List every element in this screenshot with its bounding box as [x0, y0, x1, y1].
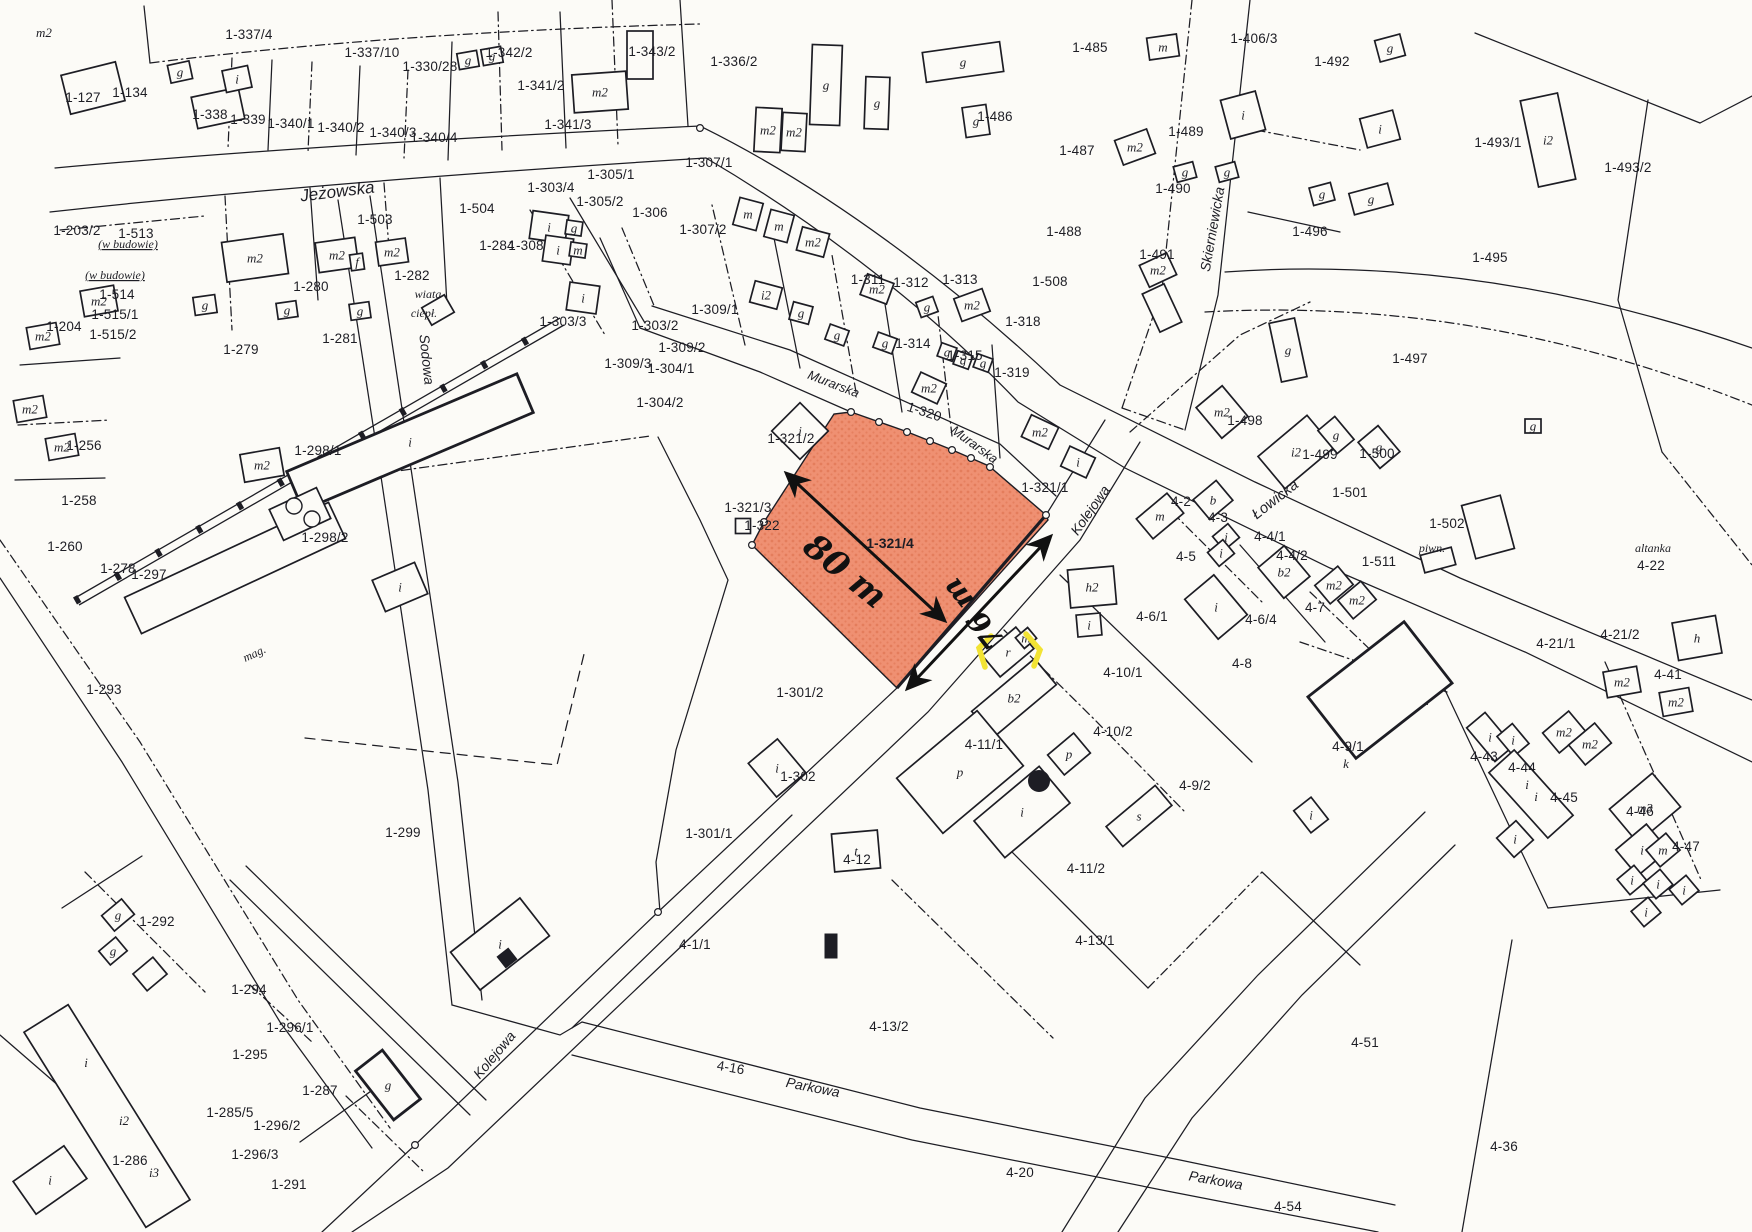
parcel-number-label: 1-491	[1139, 247, 1175, 262]
parcel-number-label: 1-321/1	[1021, 480, 1068, 495]
boundary-line	[62, 856, 142, 908]
street-name-label: Parkowa	[785, 1074, 842, 1100]
parcel-number-label: 4-16	[716, 1058, 746, 1078]
parcel-number-label: 1-341/2	[517, 78, 564, 93]
building-type-label: i	[1241, 108, 1245, 123]
building-type-label: g	[202, 298, 209, 313]
parcel-number-label: 4-46	[1626, 804, 1654, 819]
parcel-number-label: 1-336/2	[710, 54, 757, 69]
map-canvas: m2ggm2m2ggggmm2iggm2gigggi2m2m2fm2gggm2m…	[0, 0, 1752, 1232]
parcel-number-label: 4-3	[1208, 510, 1228, 525]
parcel-number-label: 1-303/4	[527, 180, 574, 195]
building-outline	[1142, 284, 1182, 332]
building-type-label: p	[956, 765, 964, 780]
building	[1462, 495, 1515, 558]
parcel-number-label: 1-287	[302, 1083, 338, 1098]
boundary-line	[1462, 940, 1512, 1232]
parcel-number-label: 1-318	[1005, 314, 1041, 329]
parcel-number-label: 1-339	[230, 112, 266, 127]
boundary-line	[452, 1005, 582, 1035]
boundary-line	[1062, 812, 1425, 1232]
parcel-number-label: 1-504	[459, 201, 495, 216]
parcel-number-label: 1-127	[65, 90, 101, 105]
building-type-label: m2	[805, 235, 821, 250]
parcel-number-label: 4-10/1	[1103, 665, 1142, 680]
parcel-number-label: 1-309/3	[604, 356, 651, 371]
building-type-label: g	[1530, 419, 1537, 434]
parcel-number-label: 4-13/2	[869, 1019, 908, 1034]
parcel-number-label: 4-51	[1351, 1035, 1379, 1050]
parcel-number-label: 1-299	[385, 825, 421, 840]
building-type-label: i	[48, 1173, 52, 1188]
parcel-number-label: 1-502	[1429, 516, 1465, 531]
parcel-number-label: 1-490	[1155, 181, 1191, 196]
building-type-label: g	[1387, 41, 1394, 56]
building-type-label: g	[798, 306, 805, 321]
building-type-label: m	[1658, 843, 1667, 858]
building-type-label: i	[1682, 883, 1686, 898]
parcel-number-label: 1-301/2	[776, 685, 823, 700]
building-type-label: m2	[254, 458, 270, 473]
parcel-number-label: 4-9/1	[1332, 739, 1364, 754]
building	[1142, 284, 1182, 332]
boundary-line	[1475, 33, 1700, 123]
map-note-label: piwn.	[1418, 541, 1445, 555]
parcel-number-label: 1-489	[1168, 124, 1204, 139]
survey-point	[697, 125, 704, 132]
cadastral-dashdot-line	[1122, 0, 1192, 408]
boundary-line	[1700, 96, 1752, 123]
parcel-number-label: 1-309/2	[658, 340, 705, 355]
parcel-number-label: 4-4/2	[1276, 548, 1308, 563]
building-type-label: k	[1343, 756, 1349, 771]
parcel-number-label: 1-296/2	[253, 1118, 300, 1133]
building-type-label: m2	[1032, 425, 1048, 440]
highlighted-parcel-number-label: 1-321/4	[866, 535, 914, 551]
parcel-number-label: 1-499	[1302, 447, 1338, 462]
parcel-number-label: 1-256	[66, 438, 102, 453]
map-note-label: ciepł.	[411, 306, 437, 320]
building-type-label: i2	[1291, 445, 1302, 460]
cadastral-dashdot-line	[1662, 452, 1752, 565]
parcel-number-label: 1-308	[508, 238, 544, 253]
parcel-number-label: 1-298/2	[301, 530, 348, 545]
parcel-number-label: 1-291	[271, 1177, 307, 1192]
parcel-number-label: 4-2	[1171, 494, 1191, 509]
silo-circle	[304, 511, 320, 527]
building	[133, 957, 167, 991]
parcel-number-label: 4-43	[1470, 749, 1498, 764]
parcel-number-label: 4-47	[1672, 839, 1700, 854]
building-type-label: i	[1076, 455, 1080, 470]
map-note-label: (w budowie)	[98, 237, 158, 251]
parcel-number-label: 1-313	[942, 272, 978, 287]
building-type-label: i	[398, 580, 402, 595]
boundary-line	[600, 238, 640, 328]
survey-point	[968, 455, 975, 462]
parcel-number-label: 1-337/4	[225, 27, 272, 42]
building-type-label: i	[1087, 618, 1091, 633]
parcel-number-label: 4-1/1	[679, 937, 711, 952]
parcel-number-label: 1-293	[86, 682, 122, 697]
building-type-label: g	[115, 908, 122, 923]
parcel-number-label: 1-303/3	[539, 314, 586, 329]
parcel-number-label: 4-44	[1508, 760, 1536, 775]
building-type-label: m2	[22, 402, 38, 417]
survey-point	[927, 438, 934, 445]
parcel-number-label: 1-342/2	[485, 45, 532, 60]
boundary-line	[20, 358, 120, 365]
parcel-number-label: 1-487	[1059, 143, 1095, 158]
building	[825, 934, 837, 958]
parcel-number-label: 1-305/2	[576, 194, 623, 209]
building-type-label: g	[960, 55, 967, 70]
parcel-number-label: 1-304/2	[636, 395, 683, 410]
cadastral-dashdot-line	[622, 228, 655, 308]
parcel-number-label: 1-303/2	[631, 318, 678, 333]
parcel-number-label: 4-11/1	[965, 737, 1003, 752]
parcel-number-label: 1-500	[1359, 446, 1395, 461]
survey-point	[655, 909, 662, 916]
building-type-label: m2	[1614, 675, 1630, 690]
building-outline	[1308, 622, 1452, 759]
building-type-label: i	[1644, 905, 1648, 920]
building-outline	[1462, 495, 1515, 558]
building-type-label: g	[1319, 187, 1326, 202]
cadastral-dashdot-line	[404, 70, 408, 158]
parcel-number-label: 1-485	[1072, 40, 1108, 55]
building-type-label: i	[498, 937, 502, 952]
cadastral-dashdot-line	[1148, 872, 1262, 988]
building-type-label: m2	[1349, 593, 1365, 608]
building-type-label: g	[1224, 165, 1231, 180]
building-type-label: m2	[786, 125, 802, 140]
building-type-label: i	[581, 291, 585, 306]
parcel-number-label: 1-285/5	[206, 1105, 253, 1120]
boundary-line	[582, 1022, 1395, 1205]
building-type-label: i	[775, 761, 779, 776]
parcel-number-label: 4-6/1	[1136, 609, 1168, 624]
building-type-label: m2	[329, 248, 345, 263]
building-type-label: m2	[384, 245, 400, 260]
building-type-label: g	[1182, 165, 1189, 180]
building-type-label: i	[1525, 777, 1529, 792]
building-type-label: h	[1694, 631, 1701, 646]
street-name-label: Kolejowa	[470, 1028, 519, 1082]
parcel-number-label: 1-492	[1314, 54, 1350, 69]
building-type-label: m	[1158, 40, 1167, 55]
parcel-number-label: 4-7	[1305, 600, 1325, 615]
parcel-number-label: 4-21/1	[1536, 636, 1575, 651]
street-name-label: Skierniewicka	[1197, 185, 1228, 272]
parcel-number-label: 4-12	[843, 852, 871, 867]
survey-point	[1043, 512, 1050, 519]
building-type-label: m2	[592, 85, 608, 100]
parcel-number-label: 1-503	[357, 212, 393, 227]
survey-point	[904, 429, 911, 436]
parcel-number-label: 1-321/3	[724, 500, 771, 515]
building-type-label: m2	[1668, 695, 1684, 710]
parcel-number-label: 4-22	[1637, 558, 1665, 573]
cadastral-dashdot-line	[18, 420, 110, 425]
building-type-label: m2	[1127, 140, 1143, 155]
building-type-label: m	[1155, 509, 1164, 524]
building-type-label: m2	[1150, 263, 1166, 278]
parcel-number-label: 1-493/2	[1604, 160, 1651, 175]
parcel-number-label: 1-312	[893, 275, 929, 290]
parcel-number-label: 1-204	[46, 319, 82, 334]
building-type-label: m2	[1326, 578, 1342, 593]
building-type-label: i	[84, 1055, 88, 1070]
building-type-label: i	[556, 243, 560, 258]
boundary-line	[572, 815, 792, 1028]
parcel-number-label: 1-295	[232, 1047, 268, 1062]
building-type-label: i	[1309, 808, 1313, 823]
building-type-label: g	[110, 944, 117, 959]
building-type-label: g	[1285, 343, 1292, 358]
parcel-number-label: 4-21/2	[1600, 627, 1639, 642]
building-type-label: i	[1214, 600, 1218, 615]
building-type-label: i	[1219, 546, 1223, 561]
street-name-label: Jeżowska	[298, 178, 375, 206]
building-type-label: m2	[1556, 725, 1572, 740]
map-note-label: altanka	[1635, 541, 1671, 555]
map-note-label: mag.	[241, 642, 268, 665]
building-type-label: i	[547, 220, 551, 235]
building-type-label: b2	[1278, 565, 1292, 580]
parcel-number-label: 1-497	[1392, 351, 1428, 366]
parcel-number-label: 1-495	[1472, 250, 1508, 265]
parcel-number-label: 1-340/2	[317, 120, 364, 135]
building-type-label: m	[743, 207, 752, 222]
street-name-label: Sodowa	[416, 333, 437, 385]
parcel-number-label: 1-307/1	[685, 155, 732, 170]
map-note-label: (w budowie)	[85, 268, 145, 282]
building-type-label: g	[284, 303, 291, 318]
survey-point	[949, 447, 956, 454]
building-type-label: m2	[247, 251, 263, 266]
building-type-label: i2	[119, 1113, 130, 1128]
boundary-line	[144, 6, 150, 63]
parcel-number-label: 1-488	[1046, 224, 1082, 239]
parcel-number-label: 1-321/2	[767, 431, 814, 446]
parcel-number-label: 1-311	[851, 272, 886, 287]
cadastral-dashdot-line	[308, 62, 312, 152]
parcel-number-label: 1-292	[139, 914, 175, 929]
parcel-number-label: 1-281	[322, 331, 358, 346]
parcel-number-label: 4-10/2	[1093, 724, 1132, 739]
building-type-label: g	[177, 65, 184, 80]
building-type-label: i2	[761, 288, 772, 303]
building-type-label: h2	[1086, 580, 1100, 595]
boundary-line	[572, 1055, 1378, 1232]
parcel-dashed-line	[305, 650, 585, 765]
building-type-label: i	[235, 72, 239, 87]
parcel-number-label: 1-338	[192, 107, 228, 122]
parcel-number-label: 4-45	[1550, 790, 1578, 805]
parcel-number-label: 1-330/28	[403, 59, 458, 74]
building-type-label: i	[1640, 843, 1644, 858]
parcel-number-label: 1-340/1	[267, 116, 314, 131]
boundary-line	[440, 178, 447, 305]
parcel-number-label: 4-4/1	[1254, 529, 1286, 544]
building-type-label: p	[1065, 747, 1073, 762]
boundary-line	[15, 478, 105, 480]
boundary-line	[356, 66, 360, 155]
cadastral-map-page: m2ggm2m2ggggmm2iggm2gigggi2m2m2fm2gggm2m…	[0, 0, 1752, 1232]
parcel-number-label: 1-493/1	[1474, 135, 1521, 150]
building-type-label: m2	[760, 123, 776, 138]
building-type-label: m2	[1582, 737, 1598, 752]
building-type-label: i	[1378, 122, 1382, 137]
parcel-number-label: 4-5	[1176, 549, 1196, 564]
building-type-label: b	[1210, 493, 1217, 508]
parcel-number-label: 4-8	[1232, 656, 1252, 671]
parcel-number-label: 4-36	[1490, 1139, 1518, 1154]
survey-point	[848, 409, 855, 416]
parcel-number-label: 4-54	[1274, 1199, 1302, 1214]
parcel-number-label: 1-305/1	[587, 167, 634, 182]
building-type-label: i2	[1543, 133, 1554, 148]
building-type-label: i	[1511, 733, 1515, 748]
parcel-number-label: 1-296/3	[231, 1147, 278, 1162]
parcel-number-label: 1-498	[1227, 413, 1263, 428]
parcel-number-label: 4-11/2	[1067, 861, 1105, 876]
parcel-number-label: 1-286	[112, 1153, 148, 1168]
parcel-number-label: 1-508	[1032, 274, 1068, 289]
parcel-number-label: 1-322	[744, 518, 780, 533]
parcel-number-label: 4-41	[1654, 667, 1682, 682]
building-type-label: i3	[149, 1165, 160, 1180]
survey-point	[876, 419, 883, 426]
map-note-label: wiata	[415, 287, 442, 301]
parcel-number-label: 1-294	[231, 982, 267, 997]
survey-point	[412, 1142, 419, 1149]
building-type-label: g	[882, 336, 889, 351]
parcel-number-label: 1-282	[394, 268, 430, 283]
parcel-number-label: 1-296/1	[266, 1020, 313, 1035]
parcel-number-label: 1-258	[61, 493, 97, 508]
parcel-number-label: 1-279	[223, 342, 259, 357]
parcel-number-label: 4-20	[1006, 1165, 1034, 1180]
boundary-line	[1618, 100, 1662, 452]
building-type-label: i	[1534, 789, 1538, 804]
parcel-number-label: 1-307/2	[679, 222, 726, 237]
parcel-number-label: 4-13/1	[1075, 933, 1114, 948]
parcel-number-label: 1-486	[977, 109, 1013, 124]
well-black-dot	[1028, 770, 1050, 792]
parcel-number-label: 1-337/10	[345, 45, 400, 60]
parcel-number-label: 1-341/3	[544, 117, 591, 132]
building-type-label: b2	[1008, 691, 1022, 706]
parcel-number-label: 1-304/1	[647, 361, 694, 376]
boundary-line	[1225, 269, 1752, 348]
building-type-label: m	[774, 219, 783, 234]
parcel-number-label: 1-302	[780, 769, 816, 784]
parcel-number-label: 1-298/1	[294, 443, 341, 458]
parcel-number-label: 1-306	[632, 205, 668, 220]
building-type-label: i	[1630, 873, 1634, 888]
building-type-label: g	[385, 1078, 392, 1093]
parcel-number-label: 1-260	[47, 539, 83, 554]
building	[1308, 622, 1452, 759]
parcel-number-label: 1-280	[293, 279, 329, 294]
building-type-label: i	[1020, 805, 1024, 820]
parcel-number-label: 1-309/1	[691, 302, 738, 317]
cadastral-dashdot-line	[892, 880, 1053, 1038]
parcel-number-label: 1-315	[947, 348, 983, 363]
building-type-label: g	[465, 53, 472, 68]
building-type-label: g	[874, 96, 881, 111]
boundary-line	[680, 0, 688, 126]
cadastral-dashdot-line	[1256, 130, 1360, 150]
parcel-number-label: 1-301/1	[685, 826, 732, 841]
survey-point	[749, 542, 756, 549]
parcel-number-label: 1-314	[895, 336, 931, 351]
building-type-label: g	[357, 304, 364, 319]
building-outline	[133, 957, 167, 991]
boundary-line	[268, 60, 272, 150]
parcel-number-label: 1-134	[112, 85, 148, 100]
building-type-label: g	[1333, 428, 1340, 443]
building-type-label: g	[834, 328, 841, 343]
building-type-label: i	[1656, 877, 1660, 892]
parcel-number-label: 1-340/4	[410, 130, 457, 145]
building-solid-mark	[825, 934, 837, 958]
building-type-label: g	[924, 300, 931, 315]
parcel-number-label: 1-343/2	[628, 44, 675, 59]
building-type-label: s	[1136, 809, 1141, 824]
parcel-number-label: 1-319	[994, 365, 1030, 380]
parcel-number-label: 1-203/2	[53, 223, 100, 238]
parcel-number-label: 1-511	[1362, 554, 1397, 569]
boundary-line	[230, 880, 470, 1115]
parcel-number-label: 1-496	[1292, 224, 1328, 239]
parcel-number-label: 1-297	[131, 567, 167, 582]
parcel-number-label: 1-515/2	[89, 327, 136, 342]
parcel-number-label: 1-514	[99, 287, 135, 302]
building-type-label: g	[1368, 192, 1375, 207]
building-type-label: m2	[36, 25, 52, 40]
building-type-label: m2	[921, 381, 937, 396]
boundary-line	[1262, 872, 1360, 965]
building-type-label: m	[573, 243, 582, 258]
parcel-number-label: 1-406/3	[1230, 31, 1277, 46]
building-type-label: m2	[964, 298, 980, 313]
building-type-label: g	[571, 221, 578, 236]
silo-circle	[286, 498, 302, 514]
building-type-label: i	[1488, 730, 1492, 745]
parcel-number-label: 1-515/1	[91, 307, 138, 322]
street-name-label: Kolejowa	[1067, 482, 1113, 538]
parcel-number-label: 4-6/4	[1245, 612, 1277, 627]
parcel-number-label: 1-501	[1332, 485, 1368, 500]
parcel-number-label: 4-9/2	[1179, 778, 1211, 793]
building-type-label: i	[408, 435, 412, 450]
boundary-line	[1118, 845, 1455, 1232]
building-type-label: i	[1513, 832, 1517, 847]
building-type-label: g	[823, 78, 830, 93]
